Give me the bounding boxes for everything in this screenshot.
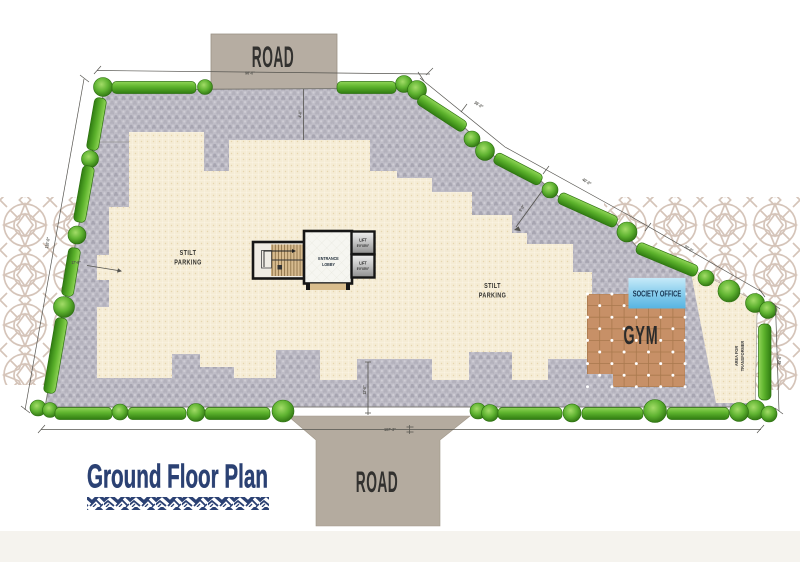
- svg-text:ENTRANCE: ENTRANCE: [318, 256, 339, 262]
- svg-text:ROAD: ROAD: [252, 40, 294, 73]
- svg-text:LIFT: LIFT: [359, 237, 367, 243]
- svg-text:ROAD: ROAD: [356, 465, 398, 498]
- svg-text:LOBBY: LOBBY: [322, 262, 335, 268]
- svg-text:GYM: GYM: [623, 322, 658, 351]
- svg-text:Ground Floor Plan: Ground Floor Plan: [87, 458, 268, 495]
- svg-text:5'0"X5'0": 5'0"X5'0": [357, 244, 370, 248]
- svg-text:5'0"X5'0": 5'0"X5'0": [357, 267, 370, 271]
- svg-text:SOCIETY OFFICE: SOCIETY OFFICE: [633, 291, 682, 299]
- svg-text:45'-0": 45'-0": [776, 355, 782, 365]
- svg-text:AREA FOR: AREA FOR: [734, 345, 739, 366]
- svg-text:12'-0": 12'-0": [363, 385, 367, 394]
- svg-text:PARKING: PARKING: [174, 259, 201, 267]
- svg-text:4'-0": 4'-0": [298, 110, 302, 117]
- svg-text:PARKING: PARKING: [479, 292, 506, 300]
- svg-text:107'-3": 107'-3": [384, 427, 396, 433]
- svg-text:TRANSFORMER: TRANSFORMER: [740, 340, 745, 371]
- svg-text:17'-6": 17'-6": [71, 261, 80, 265]
- svg-text:STILT: STILT: [484, 282, 501, 290]
- svg-text:LIFT: LIFT: [359, 260, 367, 266]
- svg-text:STILT: STILT: [180, 249, 197, 257]
- svg-text:96'-0": 96'-0": [245, 70, 255, 76]
